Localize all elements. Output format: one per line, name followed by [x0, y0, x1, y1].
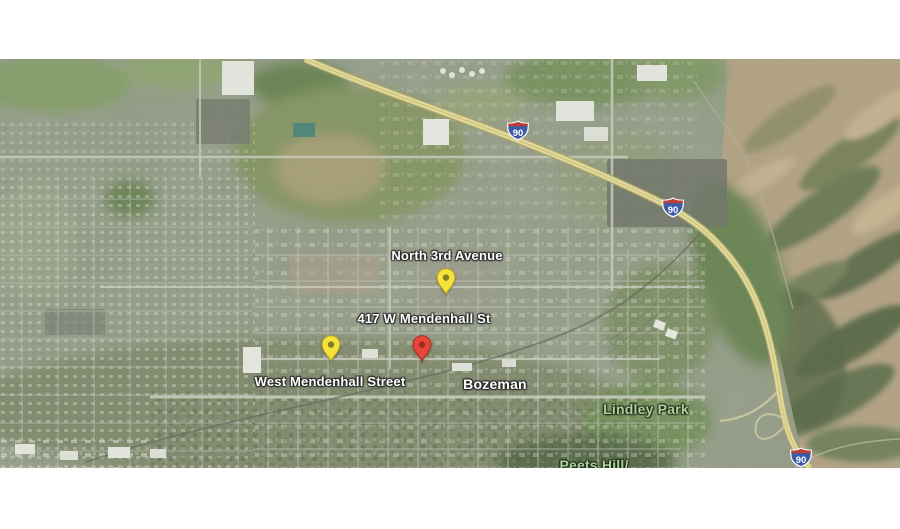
pin-dot — [443, 274, 449, 280]
label-417-w-mendenhall-st: 417 W Mendenhall St — [357, 311, 490, 326]
map-pin-417-w-mendenhall-st[interactable] — [412, 335, 432, 362]
label-north-3rd-avenue: North 3rd Avenue — [391, 248, 502, 263]
letterbox-top — [0, 0, 900, 59]
pin-dot — [419, 341, 425, 347]
map-pin-north-3rd-avenue[interactable] — [436, 268, 456, 295]
interstate-90-shield-icon: 90 — [789, 447, 813, 468]
pin-body — [437, 269, 455, 294]
pin-dot — [328, 341, 334, 347]
label-peets-hill: Peets Hill/ — [559, 457, 628, 468]
shield-route-number: 90 — [796, 455, 807, 466]
shield-route-number: 90 — [513, 128, 524, 139]
map-pin-west-mendenhall-street[interactable] — [321, 335, 341, 362]
interstate-90-shield-icon: 90 — [661, 197, 685, 218]
interstate-90-shield-icon: 90 — [506, 120, 530, 141]
pin-body — [413, 336, 431, 361]
screenshot-root: North 3rd Avenue 417 W Mendenhall St Wes… — [0, 0, 900, 529]
satellite-map[interactable]: North 3rd Avenue 417 W Mendenhall St Wes… — [0, 59, 900, 468]
shield-route-number: 90 — [668, 205, 679, 216]
letterbox-bottom — [0, 468, 900, 529]
label-lindley-park: Lindley Park — [603, 401, 689, 417]
pin-body — [322, 336, 340, 361]
label-city-bozeman: Bozeman — [463, 376, 527, 392]
satellite-imagery — [0, 59, 900, 468]
label-west-mendenhall-street: West Mendenhall Street — [255, 374, 406, 389]
